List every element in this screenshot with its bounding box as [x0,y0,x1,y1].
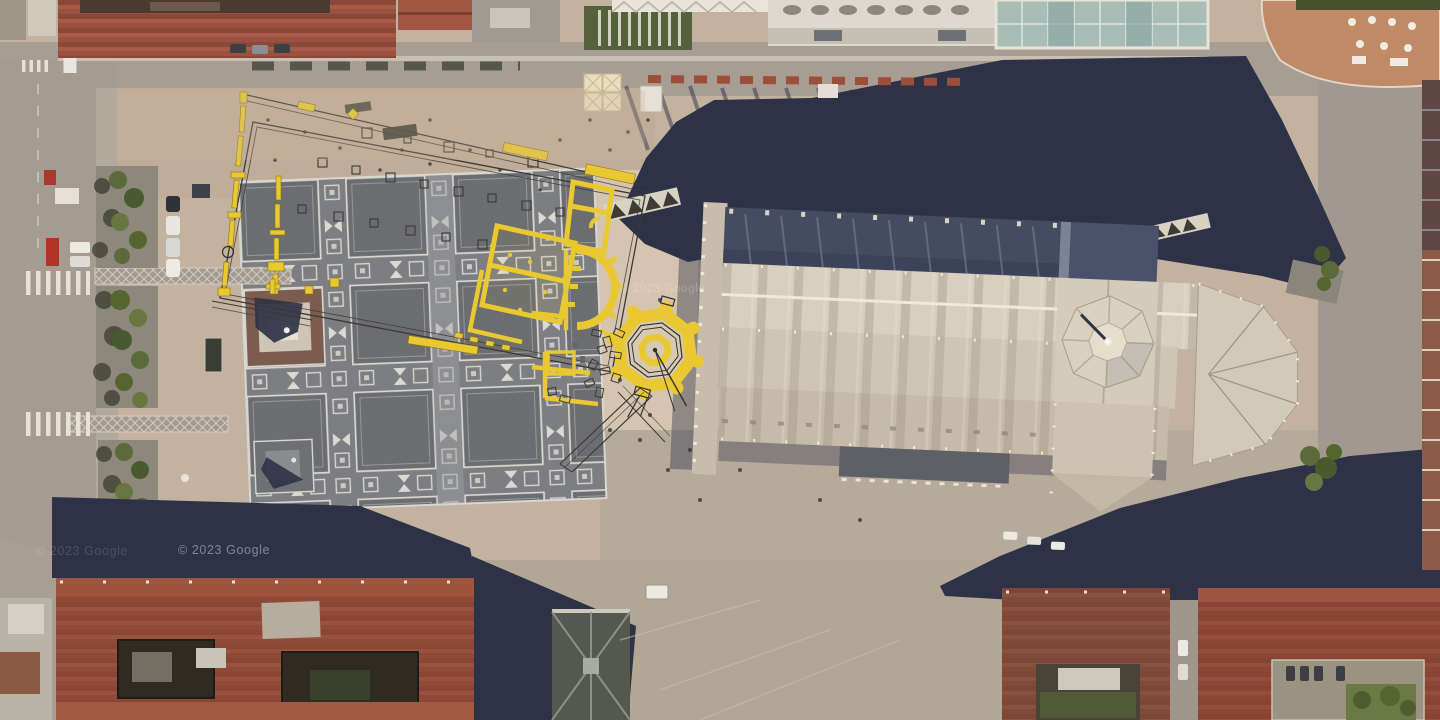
pyramid-roof-building [552,609,630,720]
red-roof-block [58,0,396,58]
metro-entrance [205,338,222,372]
southeast-block-a [1002,588,1170,720]
statue [181,474,189,482]
north-transept [1059,222,1159,284]
southeast-block-b [1198,588,1440,720]
south-monument [254,439,314,493]
red-truck [46,238,59,266]
palazzo-block [56,578,474,720]
glass-roof-building [996,0,1208,48]
pavement-highlight [115,90,645,160]
satellite-map[interactable]: © 2023 Google © 2023 Google © 2023 Googl… [0,0,1440,720]
south-transept [1052,402,1155,478]
market-stall [55,188,79,204]
white-van [646,585,668,599]
satellite-map-canvas [0,0,1440,720]
white-roof-building [768,0,998,46]
